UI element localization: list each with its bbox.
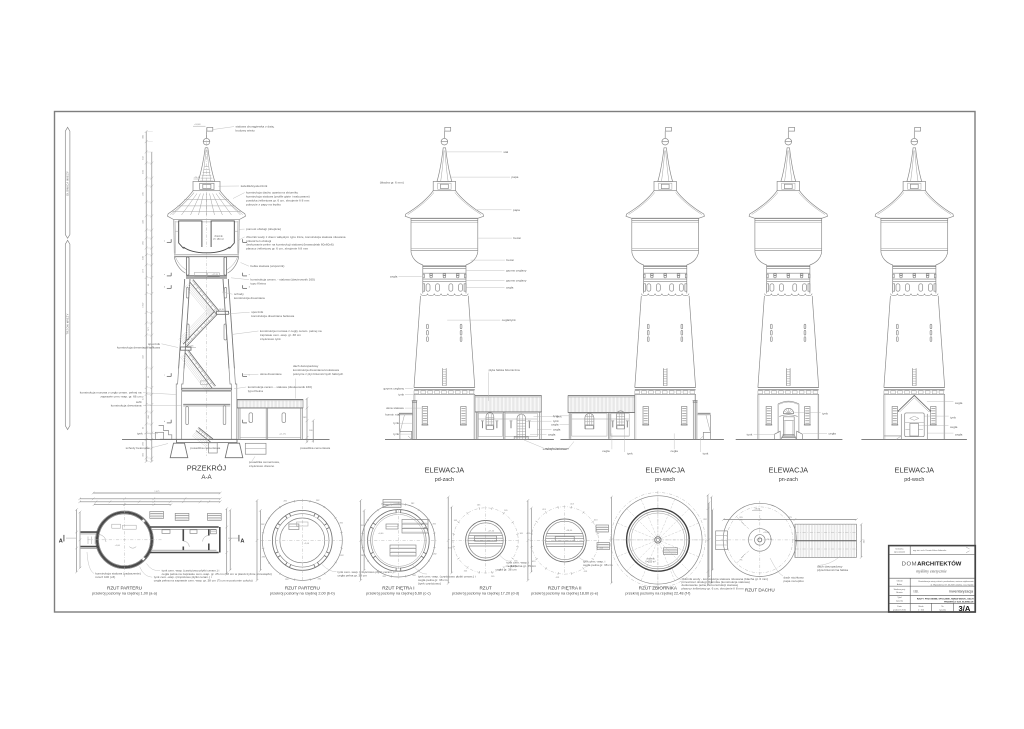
svg-text:RZUTY: PRZYZIEMIE, SPOCZNIKI,: RZUTY: PRZYZIEMIE, SPOCZNIKI, TARAS WIDO… xyxy=(917,598,974,601)
svg-text:gzyms ceglany: gzyms ceglany xyxy=(384,387,405,391)
svg-text:282: 282 xyxy=(361,555,365,557)
svg-text:282: 282 xyxy=(432,524,436,526)
svg-text:+17,20: +17,20 xyxy=(212,274,219,276)
svg-text:przekrój poziomy na rzędnej 22: przekrój poziomy na rzędnej 22,48 (f-f) xyxy=(625,591,691,595)
svg-text:okna drewniane: okna drewniane xyxy=(260,372,282,376)
svg-text:413: 413 xyxy=(532,561,536,563)
svg-text:Obiekt: Obiekt xyxy=(897,580,903,583)
svg-text:papa na lepiku: papa na lepiku xyxy=(784,579,804,583)
svg-text:papa: papa xyxy=(512,175,519,179)
svg-text:V=150 m³: V=150 m³ xyxy=(645,561,656,564)
svg-text:cegła gr. 38 cm: cegła gr. 38 cm xyxy=(496,568,517,572)
svg-text:cegła pełna gr. 38 cm: cegła pełna gr. 38 cm xyxy=(583,563,613,567)
svg-text:cegła: cegła xyxy=(955,401,963,405)
svg-text:papa: papa xyxy=(513,208,520,212)
svg-text:ELEWACJA: ELEWACJA xyxy=(769,466,809,475)
svg-text:pd-wsch: pd-wsch xyxy=(904,477,924,483)
svg-text:282: 282 xyxy=(261,524,265,526)
svg-text:cegła: cegła xyxy=(829,432,837,436)
svg-text:ELEWACJA: ELEWACJA xyxy=(425,466,465,475)
svg-text:d: d xyxy=(249,287,251,289)
svg-text:+20,46: +20,46 xyxy=(194,177,201,179)
svg-text:282: 282 xyxy=(411,503,415,505)
svg-text:cegła pełna na zaprawie cem.-w: cegła pełna na zaprawie cem.-wap. gr. 38… xyxy=(154,579,253,583)
svg-text:+18,60: +18,60 xyxy=(566,530,573,532)
svg-text:Adres: Adres xyxy=(897,583,902,586)
svg-text:+17,20: +17,20 xyxy=(488,531,495,533)
svg-text:150: 150 xyxy=(143,169,145,173)
svg-text:413: 413 xyxy=(594,520,598,522)
svg-text:282: 282 xyxy=(339,522,343,524)
svg-text:belka stalowa (wspornik): belka stalowa (wspornik) xyxy=(251,264,285,268)
svg-text:tynk: tynk xyxy=(950,415,956,419)
svg-text:240: 240 xyxy=(309,430,313,432)
svg-text:tynk: tynk xyxy=(627,452,633,456)
svg-text:grudzień 2010: grudzień 2010 xyxy=(893,610,907,612)
svg-text:165: 165 xyxy=(504,510,508,512)
svg-text:413: 413 xyxy=(542,509,546,511)
svg-text:+24,48: +24,48 xyxy=(194,124,201,126)
svg-text:przekrój poziomy na rzędnej 2,: przekrój poziomy na rzędnej 2,00 (b-b) xyxy=(270,591,336,595)
svg-text:częściowo tynk: częściowo tynk xyxy=(260,337,281,341)
svg-text:282: 282 xyxy=(412,575,416,577)
svg-text:konstrukcja drewniana belkowa: konstrukcja drewniana belkowa xyxy=(251,314,294,318)
svg-text:RZUT ZBIORNIKA: RZUT ZBIORNIKA xyxy=(639,586,678,591)
svg-text:konstrukcja drewniana: konstrukcja drewniana xyxy=(234,296,265,300)
svg-text:I.B.: I.B. xyxy=(914,589,919,593)
svg-text:300: 300 xyxy=(143,134,145,138)
svg-text:2%: 2% xyxy=(740,560,743,562)
svg-text:413: 413 xyxy=(556,577,560,579)
svg-text:rysunku: rysunku xyxy=(896,600,903,602)
svg-text:ELEWACJA: ELEWACJA xyxy=(645,466,685,475)
svg-text:formalna: formalna xyxy=(896,548,905,550)
svg-text:e: e xyxy=(164,241,166,243)
svg-text:A: A xyxy=(59,538,63,544)
svg-text:Nr: Nr xyxy=(942,606,944,608)
svg-text:cegła: cegła xyxy=(390,275,398,279)
svg-text:3/A: 3/A xyxy=(958,604,970,613)
svg-text:cegła pełna gr. 38 cm: cegła pełna gr. 38 cm xyxy=(338,573,368,577)
svg-text:282: 282 xyxy=(283,501,287,503)
svg-text:przekrój poziomy na rzędnej 17: przekrój poziomy na rzędnej 17,20 (d-d) xyxy=(452,591,520,595)
svg-text:RZUT PARTERU: RZUT PARTERU xyxy=(285,586,320,591)
svg-text:479: 479 xyxy=(788,517,792,519)
svg-text:Branża: Branża xyxy=(896,592,903,594)
svg-text:cegła: cegła xyxy=(670,449,678,453)
svg-text:tynk: tynk xyxy=(553,414,559,418)
svg-text:b: b xyxy=(164,421,166,423)
svg-text:płaszcz żelbetowy gr. 6 cm, zb: płaszcz żelbetowy gr. 6 cm, zbrojenie fi… xyxy=(246,247,308,251)
svg-text:Data: Data xyxy=(897,605,902,608)
svg-text:RZUT PIĘTRA II: RZUT PIĘTRA II xyxy=(548,586,582,591)
svg-text:d: d xyxy=(164,287,166,289)
svg-text:163: 163 xyxy=(303,417,307,419)
svg-text:+(1,17): +(1,17) xyxy=(279,434,286,436)
svg-text:schody betonowe: schody betonowe xyxy=(543,447,567,451)
svg-text:448: 448 xyxy=(143,219,145,223)
svg-text:165: 165 xyxy=(477,505,481,507)
svg-text:1 : 100: 1 : 100 xyxy=(918,610,925,612)
svg-text:przekrój poziomy na rzędnej 1,: przekrój poziomy na rzędnej 1,00 (a-a) xyxy=(92,591,158,595)
svg-text:płyta bitumiczna falista: płyta bitumiczna falista xyxy=(817,568,848,572)
svg-text:RZUT PARTERU: RZUT PARTERU xyxy=(107,586,142,591)
svg-text:165: 165 xyxy=(464,570,468,572)
svg-text:tynk: tynk xyxy=(398,393,404,397)
svg-text:+20,46: +20,46 xyxy=(763,532,770,534)
svg-text:pn-wsch: pn-wsch xyxy=(655,477,675,483)
svg-text:cegła: cegła xyxy=(602,449,610,453)
svg-text:432: 432 xyxy=(143,354,145,358)
svg-text:Rewitalizacja wieży ciśnień: p: Rewitalizacja wieży ciśnień: przebudowa,… xyxy=(918,580,974,583)
svg-text:cegła/tynk: cegła/tynk xyxy=(502,318,516,322)
svg-text:schody betonowe: schody betonowe xyxy=(126,446,150,450)
svg-text:235: 235 xyxy=(143,191,145,195)
svg-text:282: 282 xyxy=(340,555,344,557)
svg-text:pn-zach: pn-zach xyxy=(779,477,798,483)
svg-text:gzyms ceglany: gzyms ceglany xyxy=(506,278,527,282)
svg-text:cegła: cegła xyxy=(955,432,963,436)
svg-text:+1,00: +1,00 xyxy=(115,545,121,547)
svg-text:ul. Wyzwolenia 37, 44-313 Lubo: ul. Wyzwolenia 37, 44-313 Lubomia, woj. … xyxy=(930,584,974,586)
svg-text:A: A xyxy=(240,538,244,544)
svg-text:282: 282 xyxy=(262,557,266,559)
svg-text:świetlik/wywietrznik: świetlik/wywietrznik xyxy=(241,184,268,188)
svg-text:mgr inż. arch. Dorota Kulas-Ga: mgr inż. arch. Dorota Kulas-Gałeczka xyxy=(913,549,947,552)
svg-text:posadzka cementowa: posadzka cementowa xyxy=(190,446,220,450)
svg-text:102: 102 xyxy=(143,155,145,159)
svg-text:404: 404 xyxy=(148,414,150,418)
svg-text:Stadium proj.: Stadium proj. xyxy=(894,588,906,591)
svg-text:165: 165 xyxy=(448,547,452,549)
svg-text:e: e xyxy=(249,274,251,276)
svg-text:przekrój poziomy na rzędnej 18: przekrój poziomy na rzędnej 18,60 (e-e) xyxy=(531,591,599,595)
svg-text:+2,00: +2,00 xyxy=(304,543,310,545)
svg-text:+18,60: +18,60 xyxy=(754,509,761,511)
svg-text:282: 282 xyxy=(318,578,322,580)
svg-text:tynk: tynk xyxy=(137,431,143,435)
svg-text:282: 282 xyxy=(703,519,707,521)
svg-text:cegła: cegła xyxy=(548,432,556,436)
svg-text:165: 165 xyxy=(519,533,523,535)
svg-text:(tynk częściowo): (tynk częściowo) xyxy=(418,582,441,586)
svg-text:tynk: tynk xyxy=(822,411,828,415)
svg-text:Tytuł: Tytuł xyxy=(897,596,902,599)
svg-text:RZUT PIĘTRA I: RZUT PIĘTRA I xyxy=(382,586,414,591)
svg-text:170: 170 xyxy=(143,395,145,399)
svg-text:stal: stal xyxy=(503,150,508,154)
svg-text:25: 25 xyxy=(148,375,150,378)
svg-text:płaszcz żelbetowy gr. 6 cm, zb: płaszcz żelbetowy gr. 6 cm, zbrojenie fi… xyxy=(682,586,744,590)
svg-text:pokrycie z płyt bitumicznych f: pokrycie z płyt bitumicznych falistych xyxy=(293,372,344,376)
svg-text:282: 282 xyxy=(285,579,289,581)
svg-text:konstrukcja drewniana belkowa: konstrukcja drewniana belkowa xyxy=(117,346,160,350)
svg-text:V= 150 m³: V= 150 m³ xyxy=(213,238,224,241)
svg-text:typu Kleina: typu Kleina xyxy=(251,282,267,286)
svg-text:ELEWACJA: ELEWACJA xyxy=(895,466,935,475)
svg-text:A-A: A-A xyxy=(201,474,212,481)
svg-text:opracowanie: opracowanie xyxy=(894,551,906,553)
svg-text:budowy wieży: budowy wieży xyxy=(236,129,256,133)
svg-text:273: 273 xyxy=(143,268,145,272)
svg-text:282: 282 xyxy=(382,576,386,578)
svg-text:tynk: tynk xyxy=(703,452,709,456)
svg-text:posadzka cementowa: posadzka cementowa xyxy=(300,446,330,450)
svg-text:zaprawie cem.-wap. gr. 66 cm: zaprawie cem.-wap. gr. 66 cm xyxy=(100,395,142,399)
svg-text:konstrukcja drewniana: konstrukcja drewniana xyxy=(111,404,142,408)
svg-text:tynk: tynk xyxy=(393,421,399,425)
svg-text:25: 25 xyxy=(148,283,150,286)
svg-text:rura fi 100 (x3): rura fi 100 (x3) xyxy=(95,575,115,579)
svg-text:RZUT DACHU: RZUT DACHU xyxy=(745,588,775,593)
svg-text:+14,30: +14,30 xyxy=(218,309,225,311)
svg-text:+6,60: +6,60 xyxy=(378,533,384,535)
svg-text:DOMARCHITEKTÓW: DOMARCHITEKTÓW xyxy=(902,560,962,568)
svg-text:tynk: tynk xyxy=(393,432,399,436)
svg-text:tynk: tynk xyxy=(747,432,753,436)
svg-text:przekrój poziomy na rzędnej 6,: przekrój poziomy na rzędnej 6,60 (c-c) xyxy=(366,591,431,595)
svg-text:108: 108 xyxy=(143,255,145,259)
svg-text:pomost obsługi (obejście): pomost obsługi (obejście) xyxy=(246,227,281,231)
svg-text:413: 413 xyxy=(526,533,530,535)
svg-text:310: 310 xyxy=(143,452,145,456)
svg-text:konstr. stal: konstr. stal xyxy=(385,413,400,417)
svg-text:282: 282 xyxy=(316,500,320,502)
svg-text:282: 282 xyxy=(433,554,437,556)
svg-text:c: c xyxy=(249,375,250,377)
svg-text:cegła: cegła xyxy=(551,423,559,427)
svg-text:cegła: cegła xyxy=(506,285,514,289)
svg-text:rysunku: rysunku xyxy=(939,610,946,612)
svg-text:myślimy estetycznie: myślimy estetycznie xyxy=(916,569,947,573)
svg-text:cegła: cegła xyxy=(950,425,958,429)
svg-text:c: c xyxy=(164,375,165,377)
svg-text:beton: beton xyxy=(513,236,521,240)
svg-text:cegła: cegła xyxy=(553,427,561,431)
svg-text:pd-zach: pd-zach xyxy=(435,477,454,483)
svg-text:Skala: Skala xyxy=(918,606,924,608)
svg-text:413: 413 xyxy=(584,571,588,573)
svg-text:1 637: 1 637 xyxy=(143,302,145,308)
svg-text:413: 413 xyxy=(570,504,574,506)
svg-text:inwentaryzacja: inwentaryzacja xyxy=(949,590,973,594)
svg-text:52: 52 xyxy=(143,426,145,429)
svg-text:beton: beton xyxy=(506,258,514,262)
svg-text:PRZEKRÓJ: PRZEKRÓJ xyxy=(187,464,227,473)
svg-text:e: e xyxy=(164,274,166,276)
svg-text:165: 165 xyxy=(491,576,495,578)
svg-text:577: 577 xyxy=(148,326,150,330)
svg-text:częściowo drewno: częściowo drewno xyxy=(249,464,275,468)
svg-text:typu Kleina: typu Kleina xyxy=(248,389,264,393)
svg-text:RZUT: RZUT xyxy=(479,586,491,591)
svg-text:okna stalowe: okna stalowe xyxy=(386,406,404,410)
svg-text:płyta falista bitumiczna: płyta falista bitumiczna xyxy=(489,368,520,372)
svg-text:265: 265 xyxy=(739,517,743,519)
svg-text:pokrycie z papy na lepiku: pokrycie z papy na lepiku xyxy=(246,202,281,206)
svg-text:+24,48: +24,48 xyxy=(766,539,773,541)
svg-text:1 471: 1 471 xyxy=(154,491,160,493)
svg-text:255: 255 xyxy=(143,240,145,244)
svg-text:gzyms ceglany: gzyms ceglany xyxy=(506,269,527,273)
svg-text:360: 360 xyxy=(864,539,866,543)
svg-text:(blacha gr. 6 mm): (blacha gr. 6 mm) xyxy=(380,180,404,184)
